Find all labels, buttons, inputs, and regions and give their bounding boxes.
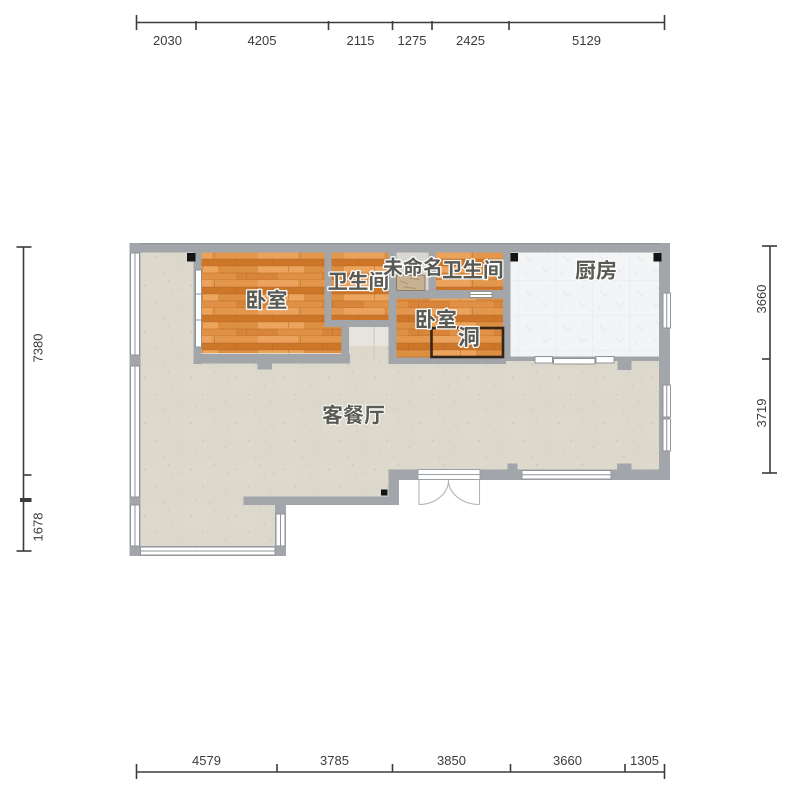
svg-text:2115: 2115: [347, 33, 375, 48]
svg-text:4205: 4205: [248, 33, 277, 48]
svg-text:3785: 3785: [320, 753, 349, 768]
svg-text:3660: 3660: [553, 753, 582, 768]
svg-text:5129: 5129: [572, 33, 601, 48]
svg-text:4579: 4579: [192, 753, 221, 768]
svg-text:1678: 1678: [31, 513, 46, 542]
svg-text:3850: 3850: [437, 753, 466, 768]
svg-text:1305: 1305: [630, 753, 659, 768]
svg-text:3719: 3719: [754, 399, 769, 428]
svg-text:1275: 1275: [398, 33, 427, 48]
svg-text:7380: 7380: [31, 334, 46, 363]
svg-text:2030: 2030: [153, 33, 182, 48]
svg-text:2425: 2425: [456, 33, 485, 48]
svg-text:3660: 3660: [754, 285, 769, 314]
